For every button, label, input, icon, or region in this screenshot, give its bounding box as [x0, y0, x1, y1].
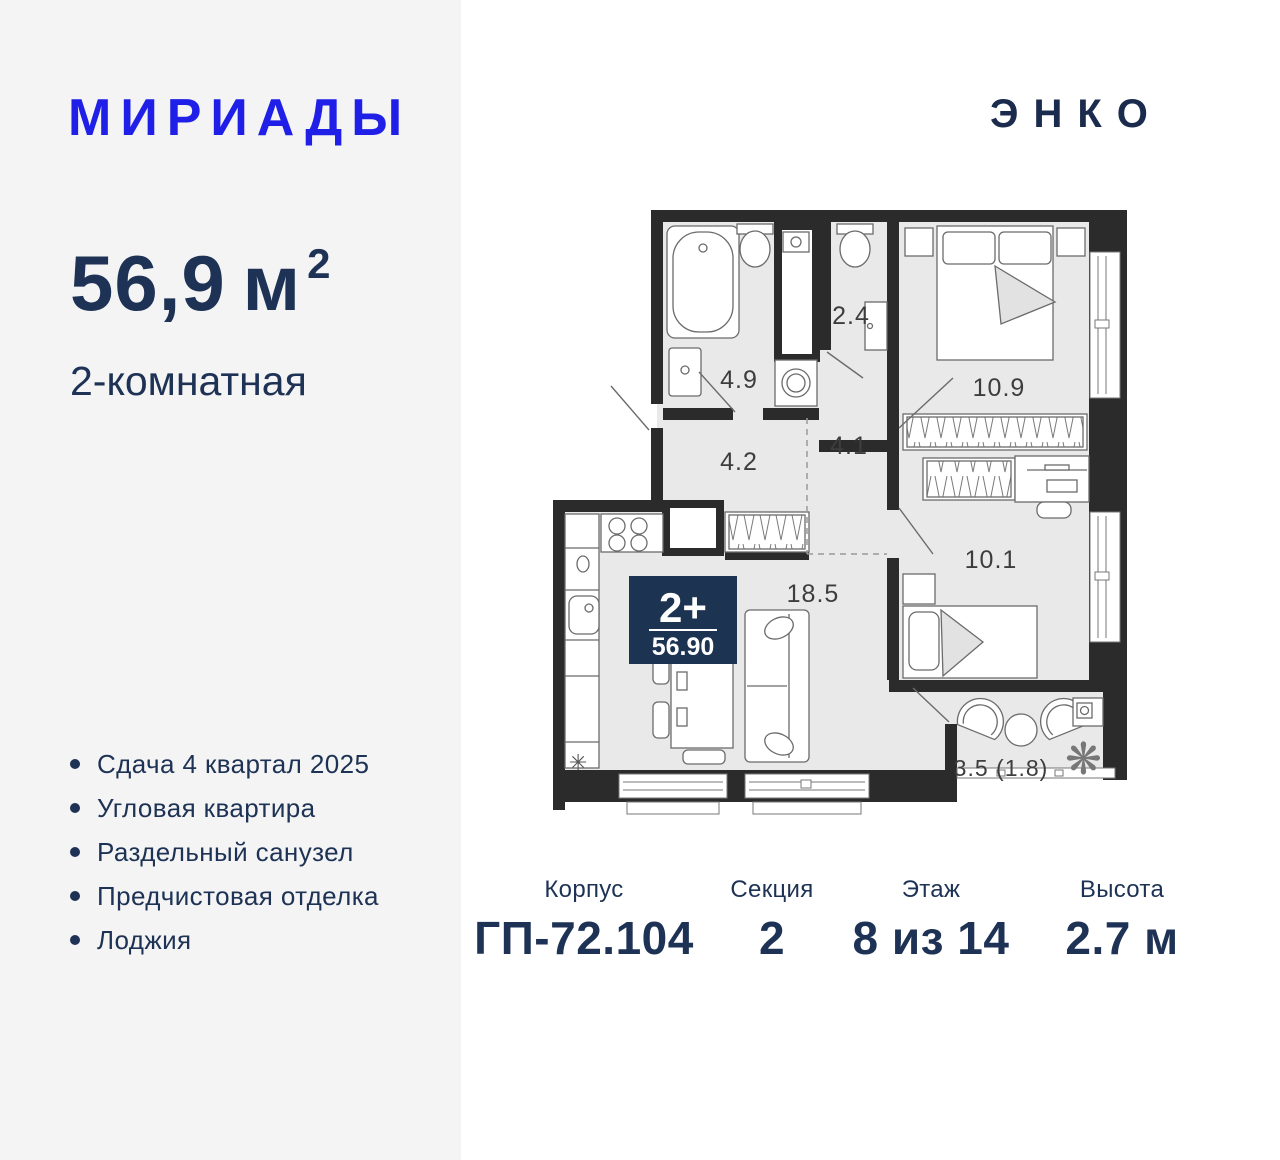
- vent-shaft-icon: [783, 232, 809, 252]
- ac-unit-icon: [1073, 698, 1103, 726]
- spec-label: Этаж: [853, 876, 1010, 904]
- spec-value: 2: [730, 911, 813, 965]
- bullet-icon: [70, 935, 80, 945]
- apartment-card: МИРИАДЫ ЭНКО 56,9 м2 2-комнатная Сдача 4…: [0, 0, 1280, 1160]
- spec-label: Корпус: [474, 876, 694, 904]
- spec-label: Секция: [730, 876, 813, 904]
- chair-icon: [653, 702, 669, 738]
- features-list: Сдача 4 квартал 2025 Угловая квартира Ра…: [70, 742, 379, 962]
- spec-value: ГП-72.104: [474, 911, 694, 965]
- washing-machine-icon: [775, 360, 817, 406]
- room-label-loggia: 3.5 (1.8): [954, 755, 1049, 781]
- bullet-icon: [70, 847, 80, 857]
- nightstand-icon: [1057, 228, 1085, 256]
- feature-item: Раздельный санузел: [70, 830, 379, 874]
- spec-value: 2.7 м: [1065, 911, 1178, 965]
- plan-badge: 2+ 56.90: [629, 576, 737, 664]
- area-value: 56,9: [70, 239, 226, 327]
- room-label-wc: 2.4: [832, 302, 870, 330]
- drain-icon: [577, 556, 589, 572]
- developer-logo: ЭНКО: [990, 92, 1163, 137]
- spec-floor: Этаж 8 из 14: [853, 876, 1010, 965]
- room-label-bedroom-2: 10.1: [965, 546, 1018, 574]
- kitchen-counter-icon: [565, 514, 599, 768]
- bullet-icon: [70, 891, 80, 901]
- sofa-icon: [745, 610, 809, 762]
- room-label-corridor: 4.1: [830, 432, 868, 460]
- fridge-icon: ✳: [569, 751, 587, 776]
- room-label-kitchen-living: 18.5: [787, 580, 840, 608]
- window-right-room2: [1090, 512, 1120, 642]
- vent-niche: [670, 508, 716, 548]
- room-label-bathroom: 4.9: [720, 366, 758, 394]
- loggia-table-icon: [1005, 714, 1037, 746]
- window-bottom-kitchen: [619, 774, 727, 814]
- feature-item: Угловая квартира: [70, 786, 379, 830]
- chair-icon: [683, 750, 725, 764]
- kitchen-sink-icon: [569, 596, 599, 634]
- spec-value: 8 из 14: [853, 911, 1010, 965]
- feature-item: Сдача 4 квартал 2025: [70, 742, 379, 786]
- spec-label: Высота: [1065, 876, 1178, 904]
- floor-plan: ✳ ❋ 4.9 2.4 10.9 4.2 4.1 10.1 18.5 3.5 (…: [549, 202, 1141, 822]
- area-superscript: 2: [307, 240, 331, 287]
- badge-area: 56.90: [652, 633, 715, 661]
- wardrobe-icon: [903, 414, 1087, 450]
- brand-logo: МИРИАДЫ: [68, 88, 411, 148]
- bathtub-icon: [667, 226, 739, 338]
- room-label-hallway: 4.2: [720, 448, 758, 476]
- entrance-door-line: [611, 386, 649, 430]
- double-bed-icon: [937, 226, 1055, 360]
- window-bottom-living: [745, 774, 869, 814]
- window-right-bedroom: [1090, 252, 1120, 398]
- bullet-icon: [70, 803, 80, 813]
- floor-plan-svg: ✳ ❋ 4.9 2.4 10.9 4.2 4.1 10.1 18.5 3.5 (…: [549, 202, 1141, 822]
- plant-icon: ❋: [1065, 734, 1102, 785]
- left-panel: [0, 0, 461, 1160]
- nightstand-icon: [903, 574, 935, 604]
- stove-icon: [601, 514, 663, 552]
- feature-item: Предчистовая отделка: [70, 874, 379, 918]
- bullet-icon: [70, 759, 80, 769]
- feature-item: Лоджия: [70, 918, 379, 962]
- nightstand-icon: [905, 228, 933, 256]
- spec-corpus: Корпус ГП-72.104: [474, 876, 694, 965]
- spec-section: Секция 2: [730, 876, 813, 965]
- area-unit: м: [242, 239, 301, 327]
- chair-icon: [1037, 502, 1071, 518]
- spec-height: Высота 2.7 м: [1065, 876, 1178, 965]
- room-label-bedroom: 10.9: [973, 374, 1026, 402]
- wardrobe-icon: [923, 458, 1015, 500]
- single-bed-icon: [903, 606, 1037, 678]
- room-type-label: 2-комнатная: [70, 358, 307, 405]
- wardrobe-icon: [725, 512, 809, 552]
- sink-icon: [669, 348, 701, 396]
- badge-rooms: 2+: [659, 584, 707, 631]
- apartment-area: 56,9 м2: [70, 238, 332, 329]
